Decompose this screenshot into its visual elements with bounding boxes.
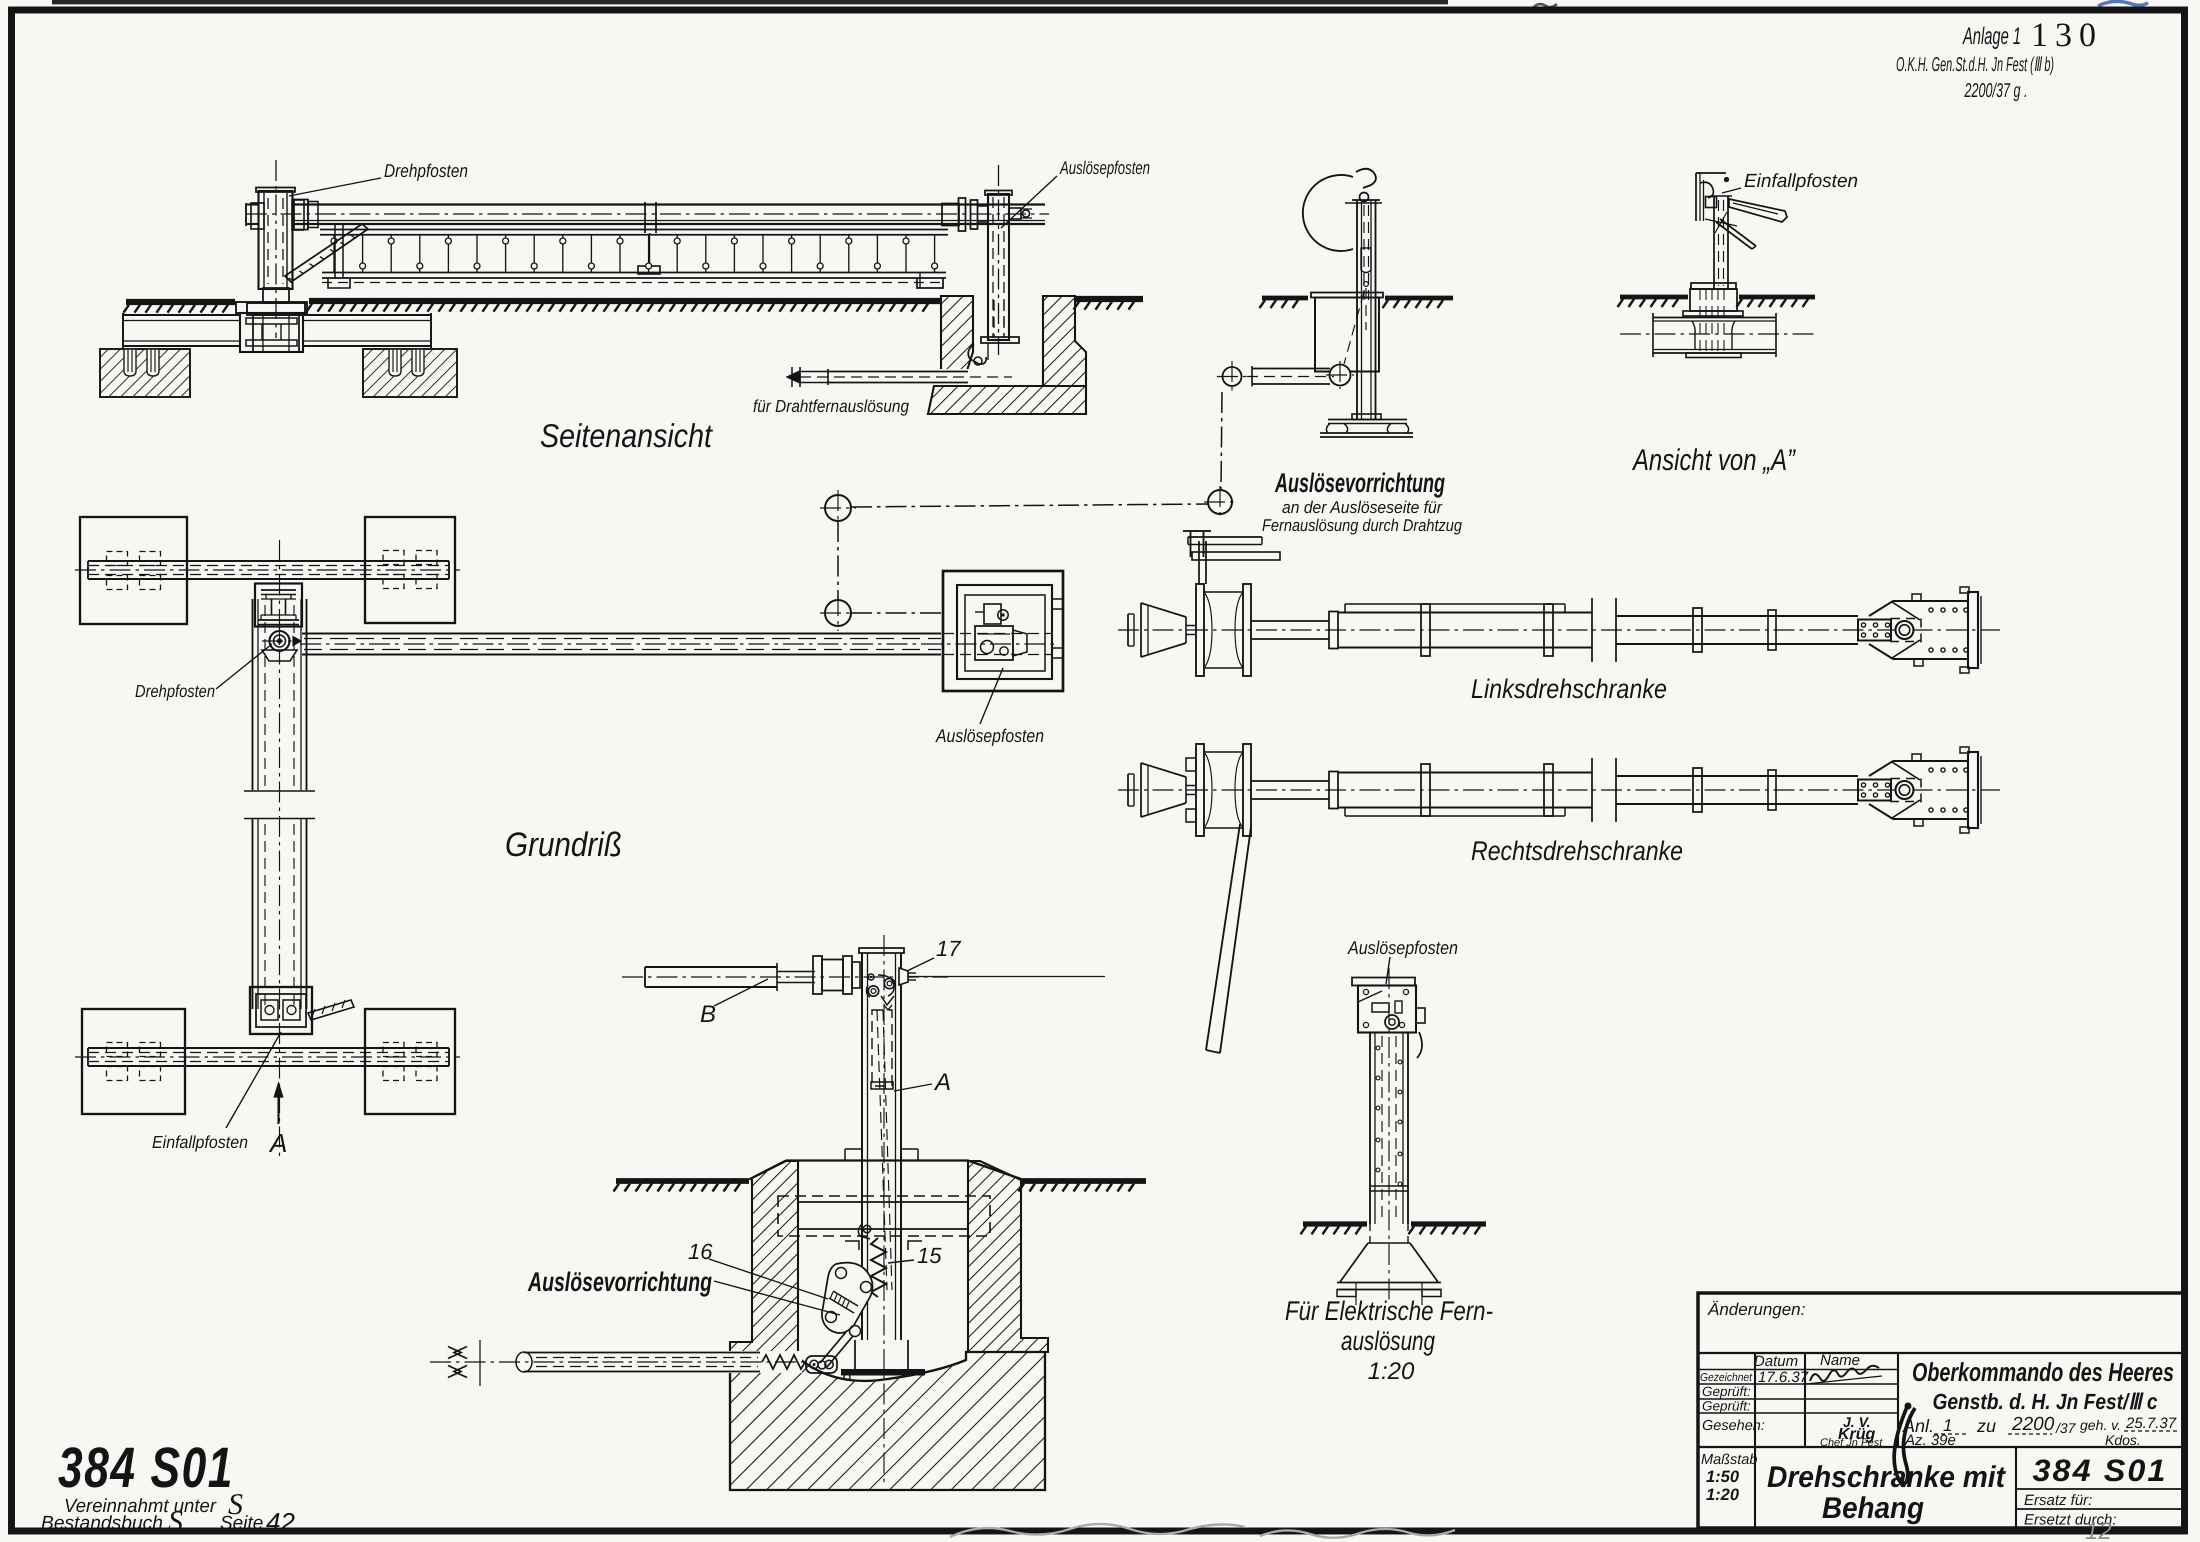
svg-text:Auslösevorrichtung: Auslösevorrichtung — [1274, 468, 1445, 498]
svg-text:Drehpfosten: Drehpfosten — [384, 160, 468, 181]
svg-text:Oberkommando des Heeres: Oberkommando des Heeres — [1912, 1357, 2174, 1387]
svg-text:Auslösepfosten: Auslösepfosten — [935, 725, 1044, 746]
svg-text:17: 17 — [936, 936, 961, 961]
svg-text:Linksdrehschranke: Linksdrehschranke — [1471, 674, 1667, 704]
svg-text:an der Auslöseseite für: an der Auslöseseite für — [1282, 498, 1443, 517]
svg-text:Geprüft:: Geprüft: — [1702, 1399, 1751, 1414]
svg-text:42: 42 — [266, 1507, 295, 1537]
svg-text:/37: /37 — [2055, 1420, 2077, 1436]
svg-text:25.7.37: 25.7.37 — [2125, 1415, 2177, 1432]
svg-text:Kdos.: Kdos. — [2105, 1432, 2141, 1448]
svg-text:17.6.37: 17.6.37 — [1758, 1369, 1809, 1386]
svg-text:Seitenansicht: Seitenansicht — [540, 417, 714, 454]
svg-text:zu: zu — [1976, 1416, 1996, 1436]
svg-text:Genstb. d. H. Jn Fest/Ⅲ c: Genstb. d. H. Jn Fest/Ⅲ c — [1933, 1389, 2158, 1414]
svg-text:Anlage 1: Anlage 1 — [1962, 23, 2021, 50]
svg-text:Fernauslösung durch Drahtzug: Fernauslösung durch Drahtzug — [1262, 516, 1462, 535]
svg-text:2200/37 g .: 2200/37 g . — [1964, 80, 2028, 102]
svg-text:Für Elektrische Fern-: Für Elektrische Fern- — [1285, 1296, 1493, 1326]
svg-text:O.K.H. Gen.St.d.H. Jn Fest (Ⅲ: O.K.H. Gen.St.d.H. Jn Fest (Ⅲ b) — [1896, 54, 2054, 76]
svg-text:15: 15 — [917, 1243, 942, 1268]
svg-text:1:50: 1:50 — [1706, 1468, 1740, 1486]
svg-text:Änderungen:: Änderungen: — [1707, 1300, 1806, 1319]
svg-text:Drehschranke mit: Drehschranke mit — [1767, 1461, 2007, 1494]
svg-text:A: A — [933, 1069, 951, 1096]
svg-text:Drehpfosten: Drehpfosten — [135, 681, 215, 701]
svg-text:Seite: Seite — [220, 1513, 263, 1534]
svg-text:1:20: 1:20 — [1706, 1486, 1740, 1504]
svg-text:Az. 39e: Az. 39e — [1904, 1432, 1956, 1449]
svg-text:Ansicht von „A”: Ansicht von „A” — [1631, 444, 1796, 477]
svg-text:16: 16 — [688, 1239, 713, 1264]
svg-text:Bestandsbuch: Bestandsbuch — [41, 1513, 163, 1534]
svg-text:Grundriß: Grundriß — [505, 826, 622, 864]
svg-text:Gesehen:: Gesehen: — [1702, 1418, 1765, 1434]
svg-text:auslösung: auslösung — [1341, 1326, 1435, 1356]
svg-text:Auslösepfosten: Auslösepfosten — [1347, 937, 1458, 958]
svg-text:Gezeichnet: Gezeichnet — [1700, 1372, 1753, 1384]
svg-text:B: B — [700, 1001, 716, 1028]
svg-text:12: 12 — [2085, 1518, 2112, 1542]
svg-text:130: 130 — [2031, 17, 2103, 54]
svg-text:384 S01: 384 S01 — [58, 1436, 234, 1500]
svg-text:Chef Jn Fest: Chef Jn Fest — [1820, 1437, 1883, 1449]
svg-text:Auslösevorrichtung: Auslösevorrichtung — [527, 1267, 712, 1297]
svg-text:geh. v.: geh. v. — [2080, 1417, 2121, 1433]
svg-text:384 S01: 384 S01 — [2033, 1453, 2168, 1488]
svg-text:A: A — [268, 1128, 287, 1158]
svg-text:S: S — [168, 1505, 183, 1538]
svg-text:1:20: 1:20 — [1368, 1358, 1415, 1385]
svg-text:Einfallpfosten: Einfallpfosten — [1744, 171, 1858, 192]
svg-text:Auslösepfosten: Auslösepfosten — [1059, 157, 1150, 178]
svg-text:Ersatz für:: Ersatz für: — [2024, 1492, 2092, 1509]
svg-text:Behang: Behang — [1822, 1492, 1924, 1525]
svg-text:Geprüft:: Geprüft: — [1702, 1384, 1751, 1399]
svg-text:Einfallpfosten: Einfallpfosten — [152, 1132, 248, 1152]
svg-text:Name: Name — [1820, 1352, 1860, 1369]
svg-text:für Drahtfernauslösung: für Drahtfernauslösung — [753, 396, 909, 416]
svg-text:Maßstab: Maßstab — [1701, 1452, 1757, 1468]
svg-text:2200: 2200 — [2011, 1414, 2055, 1435]
svg-text:Rechtsdrehschranke: Rechtsdrehschranke — [1471, 836, 1683, 866]
svg-text:Datum: Datum — [1754, 1353, 1798, 1370]
